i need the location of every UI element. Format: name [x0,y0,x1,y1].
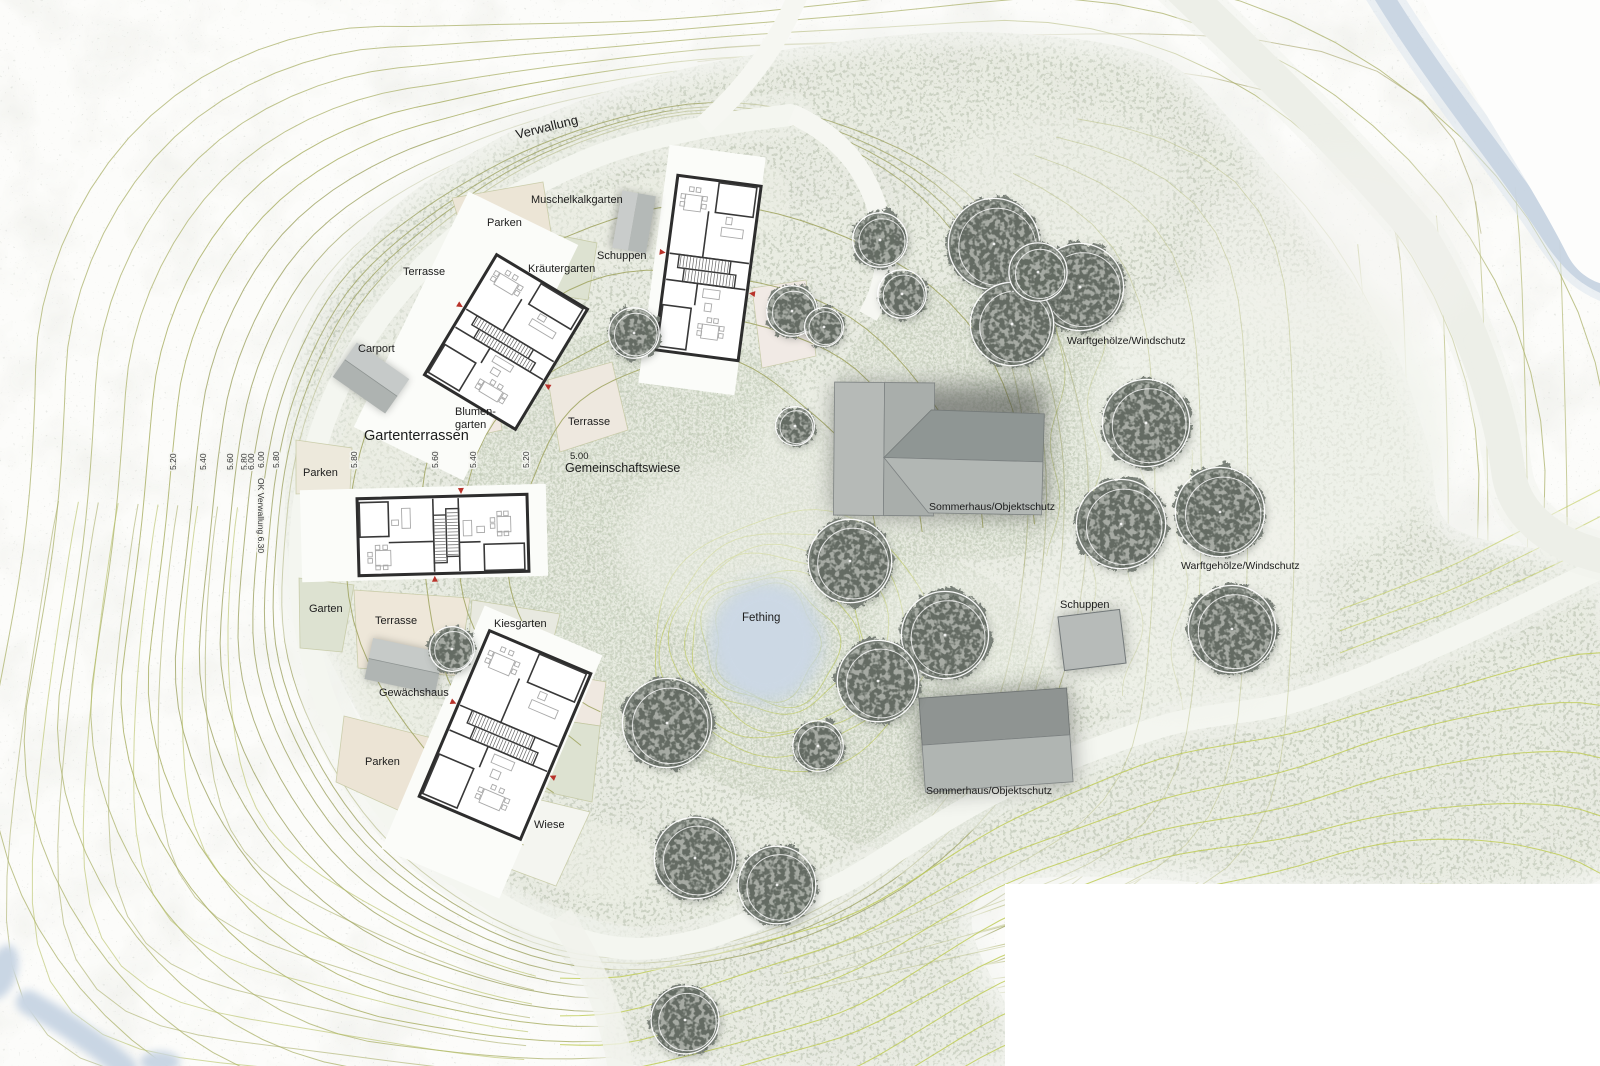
svg-text:Wiese: Wiese [534,819,565,831]
svg-text:5.60: 5.60 [225,453,235,470]
svg-text:Schuppen: Schuppen [1060,599,1110,611]
svg-text:5.20: 5.20 [168,453,178,470]
svg-text:Sommerhaus/Objektschutz: Sommerhaus/Objektschutz [929,501,1055,513]
svg-text:Warftgehölze/Windschutz: Warftgehölze/Windschutz [1181,560,1300,572]
svg-text:5.60: 5.60 [430,451,440,468]
svg-text:Parken: Parken [365,756,400,768]
svg-text:Terrasse: Terrasse [375,615,417,627]
svg-text:Terrasse: Terrasse [568,416,610,428]
svg-text:Muschelkalkgarten: Muschelkalkgarten [531,194,623,206]
svg-text:Carport: Carport [358,343,395,355]
svg-text:OK Verwallung 6.30: OK Verwallung 6.30 [256,478,266,553]
svg-text:Fething: Fething [742,612,780,624]
svg-text:Parken: Parken [303,467,338,479]
svg-text:Kiesgarten: Kiesgarten [494,618,547,630]
svg-text:Gewächshaus: Gewächshaus [379,687,449,699]
svg-text:Kräutergarten: Kräutergarten [528,263,595,275]
svg-text:6.00: 6.00 [246,453,256,470]
svg-text:Terrasse: Terrasse [403,266,445,278]
svg-text:Garten: Garten [309,603,343,615]
svg-text:Parken: Parken [487,217,522,229]
svg-text:5.20: 5.20 [521,451,531,468]
svg-text:Gemeinschaftswiese: Gemeinschaftswiese [565,461,680,475]
svg-text:5.80: 5.80 [349,451,359,468]
svg-text:5.40: 5.40 [468,451,478,468]
svg-text:6.00: 6.00 [256,451,266,468]
svg-text:Blumen-: Blumen- [455,406,496,418]
svg-text:5.40: 5.40 [198,453,208,470]
svg-text:Warftgehölze/Windschutz: Warftgehölze/Windschutz [1067,335,1186,347]
svg-text:Sommerhaus/Objektschutz: Sommerhaus/Objektschutz [926,785,1052,797]
svg-text:Schuppen: Schuppen [597,250,647,262]
svg-text:5.80: 5.80 [271,451,281,468]
svg-text:Gartenterrassen: Gartenterrassen [364,428,469,444]
